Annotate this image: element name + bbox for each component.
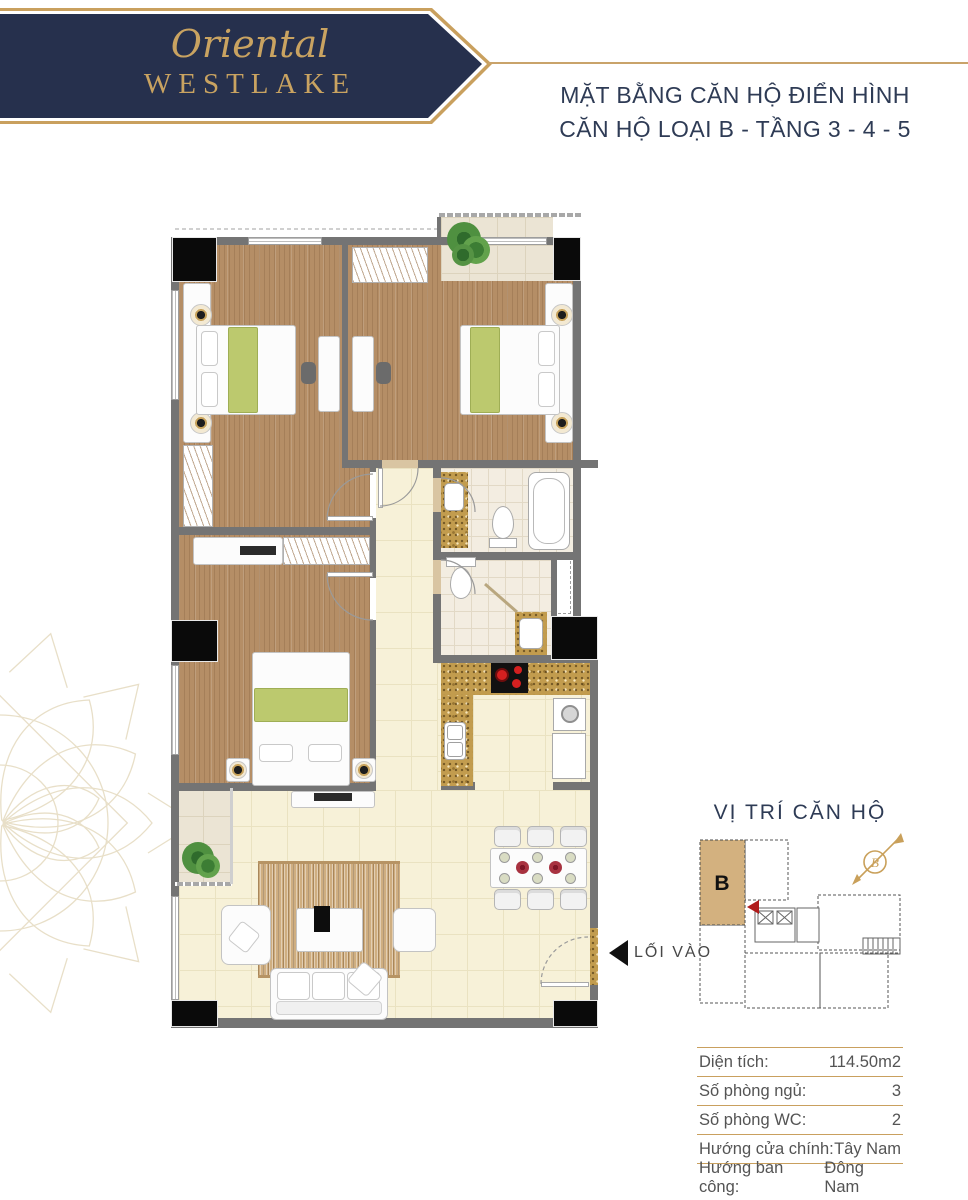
door-gap	[370, 472, 376, 518]
place-setting	[565, 852, 576, 863]
bedroom1-top-window	[248, 237, 322, 245]
toilet-bowl	[492, 506, 514, 539]
compass-icon: B	[852, 833, 904, 885]
wall-hall-top	[342, 460, 598, 468]
burner	[495, 668, 509, 682]
door-threshold	[433, 478, 441, 512]
lamp	[551, 412, 573, 434]
bed-pillow	[201, 331, 218, 366]
kitchen-sink-basin	[447, 725, 463, 740]
bedroom3-left-window	[171, 665, 179, 755]
hallway-floor	[375, 468, 437, 790]
centerpiece	[516, 861, 529, 874]
table-row: Diện tích: 114.50m2	[697, 1047, 903, 1077]
sofa-seat	[276, 1001, 382, 1015]
balcony-left-railing	[175, 882, 232, 886]
ottoman	[393, 908, 436, 952]
door-threshold	[382, 460, 418, 468]
dining-chair	[494, 889, 521, 910]
wall-bottom	[171, 1018, 598, 1028]
key-plan: B B	[690, 830, 910, 1015]
table-row: Số phòng WC: 2	[697, 1106, 903, 1135]
tv-screen	[314, 906, 330, 932]
info-value: Đông Nam	[824, 1159, 901, 1197]
bed-throw	[254, 688, 348, 722]
door-threshold	[433, 560, 441, 594]
balcony-top-railing	[437, 213, 581, 217]
dining-chair	[527, 889, 554, 910]
plant	[452, 244, 474, 266]
bed-throw	[470, 327, 500, 413]
info-value: 3	[892, 1082, 901, 1101]
bedroom1-left-window	[171, 290, 179, 400]
column	[171, 620, 218, 662]
door-leaf	[327, 516, 373, 521]
bed-pillow	[259, 744, 293, 762]
lamp	[551, 304, 573, 326]
wall-bedroom-divider	[342, 245, 348, 468]
unit-marker-icon	[747, 900, 759, 914]
info-value: Tây Nam	[834, 1140, 901, 1159]
wall-kitchen-stub-right	[553, 782, 590, 790]
living-left-window	[171, 896, 179, 1000]
bed-pillow	[201, 372, 218, 407]
wardrobe	[352, 247, 428, 283]
table-row: Số phòng ngủ: 3	[697, 1077, 903, 1106]
desk-chair	[376, 362, 391, 384]
entrance-threshold	[590, 928, 598, 985]
wall-right-upper	[573, 237, 581, 616]
table-row: Hướng ban công: Đông Nam	[697, 1164, 903, 1192]
place-setting	[565, 873, 576, 884]
desk	[318, 336, 340, 412]
column	[553, 1000, 598, 1027]
dining-chair	[560, 826, 587, 847]
sofa-cushion	[277, 972, 310, 1000]
tv	[240, 546, 276, 555]
toilet-bowl	[450, 567, 472, 599]
sink	[444, 483, 464, 511]
bathtub-basin	[533, 478, 565, 544]
washing-machine-drum	[561, 705, 579, 723]
place-setting	[499, 852, 510, 863]
place-setting	[532, 873, 543, 884]
info-value: 114.50m2	[829, 1053, 901, 1072]
fridge	[552, 733, 586, 779]
info-label: Số phòng WC:	[699, 1111, 806, 1130]
column	[553, 237, 581, 281]
door-gap	[370, 578, 376, 620]
place-setting	[499, 873, 510, 884]
centerpiece	[549, 861, 562, 874]
info-label: Số phòng ngủ:	[699, 1082, 806, 1101]
svg-text:B: B	[871, 855, 879, 870]
tv	[314, 793, 352, 801]
column	[551, 616, 598, 660]
plant	[196, 854, 220, 878]
dining-chair	[494, 826, 521, 847]
wardrobe	[283, 537, 370, 565]
dining-chair	[527, 826, 554, 847]
bed-pillow	[538, 331, 555, 366]
floor-plan: LỐI VÀO	[0, 0, 968, 1200]
lamp	[190, 304, 212, 326]
toilet-tank	[489, 538, 517, 548]
dining-chair	[560, 889, 587, 910]
info-label: Hướng cửa chính:	[699, 1140, 834, 1159]
desk	[352, 336, 374, 412]
lamp	[355, 761, 373, 779]
wall-balcony-top-side	[437, 217, 441, 245]
sink	[519, 618, 543, 649]
entrance-arrow-icon	[609, 940, 628, 966]
lamp	[190, 412, 212, 434]
info-value: 2	[892, 1111, 901, 1130]
place-setting	[532, 852, 543, 863]
bed-throw	[228, 327, 258, 413]
bed-pillow	[308, 744, 342, 762]
toilet-tank	[446, 557, 476, 567]
info-label: Hướng ban công:	[699, 1159, 824, 1197]
page: Oriental WESTLAKE MẶT BẰNG CĂN HỘ ĐIỂN H…	[0, 0, 968, 1200]
bed-pillow	[538, 372, 555, 407]
entrance-door-leaf	[541, 982, 589, 987]
desk-chair	[301, 362, 316, 384]
door-leaf	[327, 572, 373, 577]
sofa-cushion	[312, 972, 345, 1000]
wardrobe	[183, 445, 213, 527]
column	[172, 237, 217, 282]
burner	[512, 679, 521, 688]
balcony-left-glass-door	[230, 788, 233, 884]
kitchen-sink-basin	[447, 742, 463, 757]
column	[171, 1000, 218, 1027]
wall-bedroom1-bottom	[171, 527, 375, 535]
unit-b-label: B	[714, 872, 729, 895]
burner	[514, 666, 522, 674]
location-title: VỊ TRÍ CĂN HỘ	[690, 801, 910, 825]
unit-info-table: Diện tích: 114.50m2 Số phòng ngủ: 3 Số p…	[697, 1047, 903, 1192]
lamp	[229, 761, 247, 779]
door-leaf	[378, 468, 383, 508]
info-label: Diện tích:	[699, 1053, 769, 1072]
